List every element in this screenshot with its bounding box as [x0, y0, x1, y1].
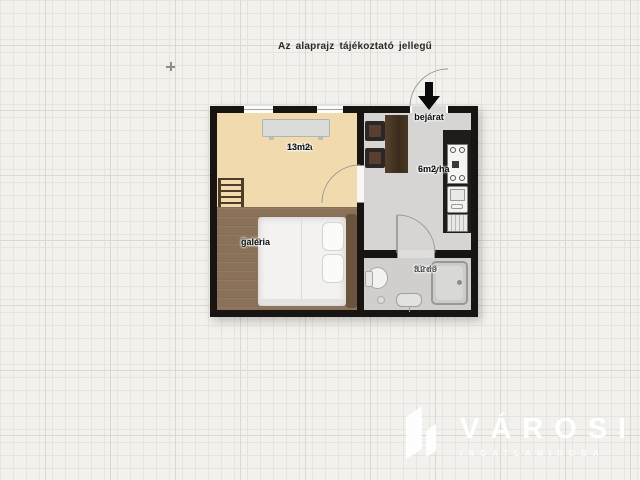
room-area: 3.2 m²	[414, 264, 437, 275]
floorplan-page: Az alaprajz tájékoztató jellegű	[0, 0, 640, 480]
brand-name: VÁROSI	[460, 413, 637, 446]
room-area: 6m2	[418, 164, 436, 175]
room-name: galéria	[241, 237, 270, 248]
disclaimer-note: Az alaprajz tájékoztató jellegű	[270, 41, 440, 52]
entrance-label: bejárat	[414, 112, 444, 123]
entrance-arrow-icon	[418, 82, 440, 110]
szoba-door-arc	[322, 165, 360, 203]
door-swing-overlay	[210, 62, 478, 317]
brand-subtitle: INGATLANIRODA	[460, 449, 637, 458]
brand-logo: VÁROSI INGATLANIRODA	[402, 401, 637, 467]
bathroom-door-arc	[397, 215, 435, 253]
floorplan: szoba 13m2 7 m2 galéria konyha 6m2 fürdő…	[210, 106, 478, 317]
registration-cross-icon	[166, 62, 175, 71]
room-area: 13m2	[287, 142, 310, 153]
building-icon	[402, 401, 450, 467]
